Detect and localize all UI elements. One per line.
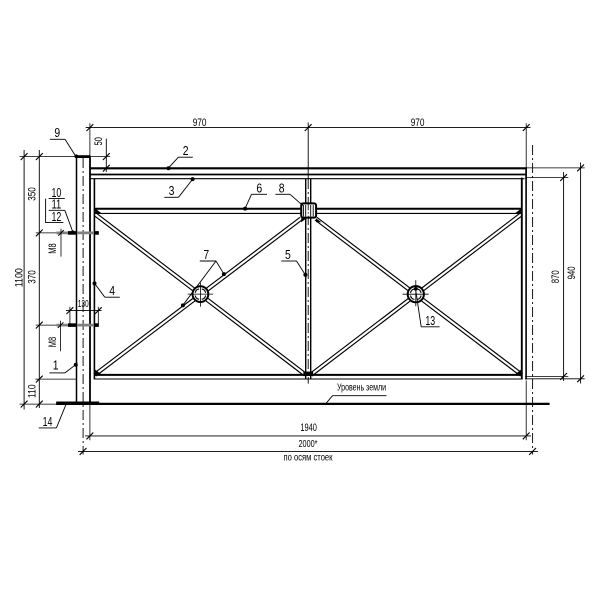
svg-text:по осям стоек: по осям стоек (284, 452, 334, 463)
svg-text:350: 350 (26, 187, 38, 201)
svg-text:12: 12 (52, 210, 62, 224)
svg-text:14: 14 (43, 415, 53, 429)
svg-text:1: 1 (53, 358, 59, 372)
svg-text:Уровень земли: Уровень земли (337, 383, 386, 394)
svg-text:9: 9 (54, 126, 60, 140)
svg-text:13: 13 (425, 314, 435, 328)
svg-text:1940: 1940 (300, 422, 317, 434)
svg-text:970: 970 (411, 117, 425, 129)
svg-text:50: 50 (93, 137, 105, 146)
svg-text:6: 6 (256, 182, 262, 196)
svg-text:940: 940 (566, 266, 578, 279)
svg-text:370: 370 (26, 270, 38, 284)
svg-text:2000*: 2000* (299, 438, 318, 450)
svg-text:3: 3 (169, 184, 175, 198)
svg-text:M8: M8 (47, 337, 59, 348)
svg-text:2: 2 (183, 144, 189, 158)
svg-text:970: 970 (193, 117, 207, 129)
svg-text:870: 870 (550, 270, 562, 283)
svg-text:5: 5 (285, 248, 291, 262)
svg-text:130: 130 (78, 298, 89, 310)
svg-text:1100: 1100 (14, 268, 26, 287)
svg-text:7: 7 (203, 248, 209, 262)
svg-text:8: 8 (279, 182, 285, 196)
svg-text:M8: M8 (47, 243, 59, 254)
svg-text:110: 110 (26, 384, 38, 398)
svg-text:4: 4 (109, 284, 115, 298)
